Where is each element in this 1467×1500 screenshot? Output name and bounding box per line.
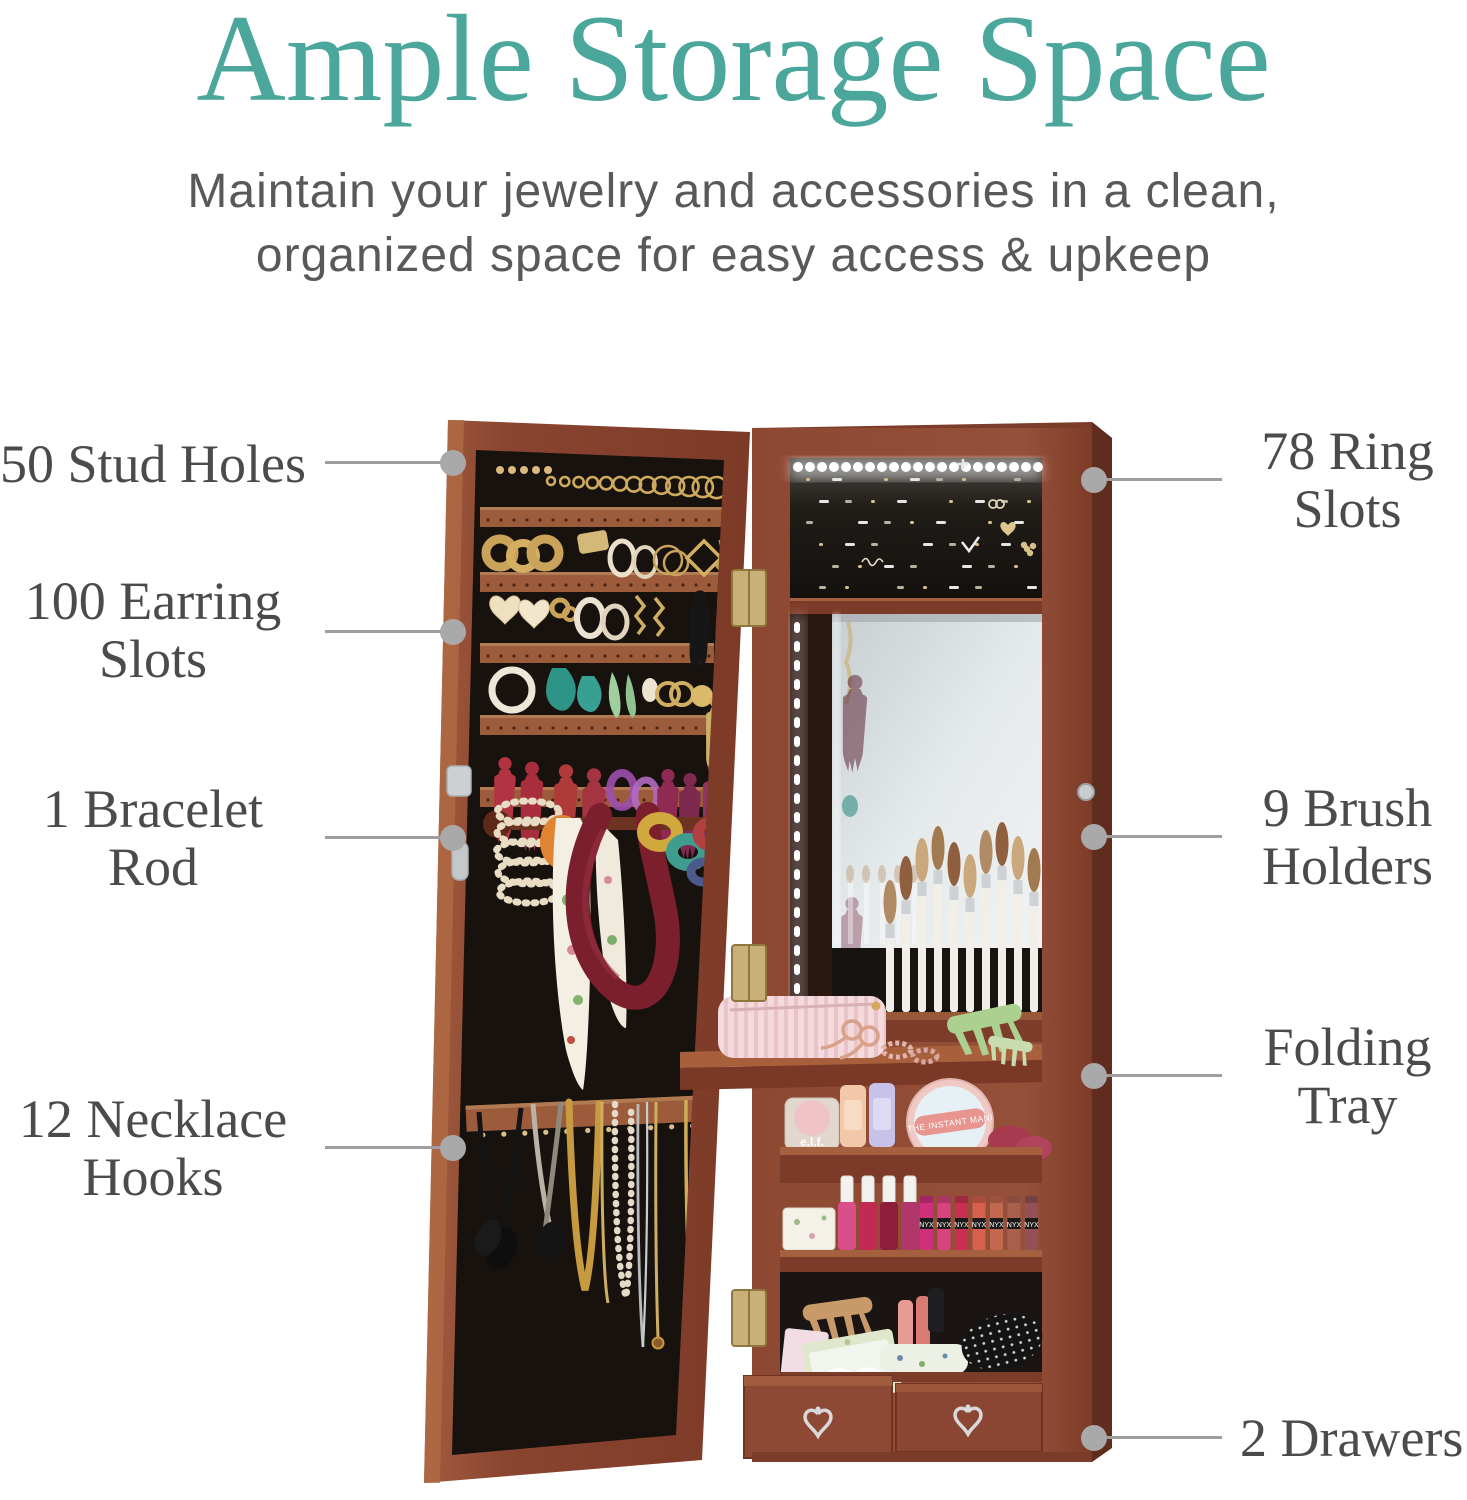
hinge-bottom (732, 1290, 766, 1346)
mascara (928, 1288, 944, 1332)
floral-pouch (880, 1344, 968, 1374)
callout-earring-slots: 100 Earring Slots (0, 572, 306, 688)
cabinet-bottom-edge (752, 1452, 1092, 1462)
callout-text: Hooks (0, 1148, 306, 1206)
callout-leader-dot (440, 450, 466, 476)
drawer-right (896, 1384, 1042, 1452)
hinge-middle (732, 945, 766, 1001)
mini-lipstick (898, 1300, 913, 1348)
led-strip-top (793, 462, 1043, 472)
callout-leader-dot (1081, 467, 1107, 493)
callout-necklace-hooks: 12 Necklace Hooks (0, 1090, 306, 1206)
svg-text:NYX: NYX (937, 1222, 952, 1229)
callout-text: 12 Necklace (0, 1090, 306, 1148)
callout-text: 2 Drawers (1240, 1409, 1455, 1467)
led-strip-side (790, 614, 806, 1014)
callout-leader-dot (440, 619, 466, 645)
left-door (424, 420, 750, 1483)
shelf-1 (780, 1147, 1042, 1155)
callout-text: Tray (1240, 1076, 1455, 1134)
callout-leader-dot (1081, 1063, 1107, 1089)
callout-text: 78 Ring (1240, 422, 1455, 480)
callout-stud-holes: 50 Stud Holes (0, 435, 306, 493)
svg-text:NYX: NYX (954, 1222, 969, 1229)
svg-text:NYX: NYX (919, 1222, 934, 1229)
callout-text: Rod (0, 838, 306, 896)
callout-text: 50 Stud Holes (0, 435, 306, 493)
callout-leader-line (325, 461, 453, 464)
callout-leader-line (1100, 478, 1222, 481)
callout-leader-line (325, 1146, 453, 1149)
callout-text: Slots (0, 630, 306, 688)
jewelry-armoire-photo: THE INSTANT MANI e.l.f. NYXNYXNYXNYXNYXN… (0, 0, 1467, 1500)
page: Ample Storage Space Maintain your jewelr… (0, 0, 1467, 1500)
hinge-top (732, 570, 766, 626)
svg-text:NYX: NYX (989, 1222, 1004, 1229)
callout-leader-line (325, 630, 453, 633)
callout-leader-dot (440, 825, 466, 851)
callout-leader-dot (440, 1135, 466, 1161)
callout-leader-line (325, 836, 453, 839)
callout-text: 100 Earring (0, 572, 306, 630)
callout-text: Folding (1240, 1018, 1455, 1076)
drawer-left (744, 1376, 892, 1458)
callout-folding-tray: Folding Tray (1240, 1018, 1455, 1134)
callout-leader-line (1100, 835, 1222, 838)
shelf-2 (780, 1250, 1042, 1257)
callout-text: 1 Bracelet (0, 780, 306, 838)
svg-text:e.l.f.: e.l.f. (800, 1135, 824, 1149)
callout-leader-dot (1081, 1425, 1107, 1451)
callout-leader-line (1100, 1074, 1222, 1077)
callout-text: Slots (1240, 480, 1455, 538)
callout-bracelet-rod: 1 Bracelet Rod (0, 780, 306, 896)
callout-text: Holders (1240, 837, 1455, 895)
floral-box (783, 1208, 835, 1250)
callout-brush-holders: 9 Brush Holders (1240, 779, 1455, 895)
cabinet-lock-knob (1078, 784, 1094, 800)
callout-ring-slots: 78 Ring Slots (1240, 422, 1455, 538)
callout-leader-dot (1081, 824, 1107, 850)
svg-text:NYX: NYX (1007, 1222, 1022, 1229)
svg-text:NYX: NYX (972, 1222, 987, 1229)
svg-text:NYX: NYX (1024, 1222, 1039, 1229)
callout-leader-line (1100, 1436, 1222, 1439)
callout-text: 9 Brush (1240, 779, 1455, 837)
callout-drawers: 2 Drawers (1240, 1409, 1455, 1467)
cabinet-side-panel (1092, 422, 1112, 1462)
